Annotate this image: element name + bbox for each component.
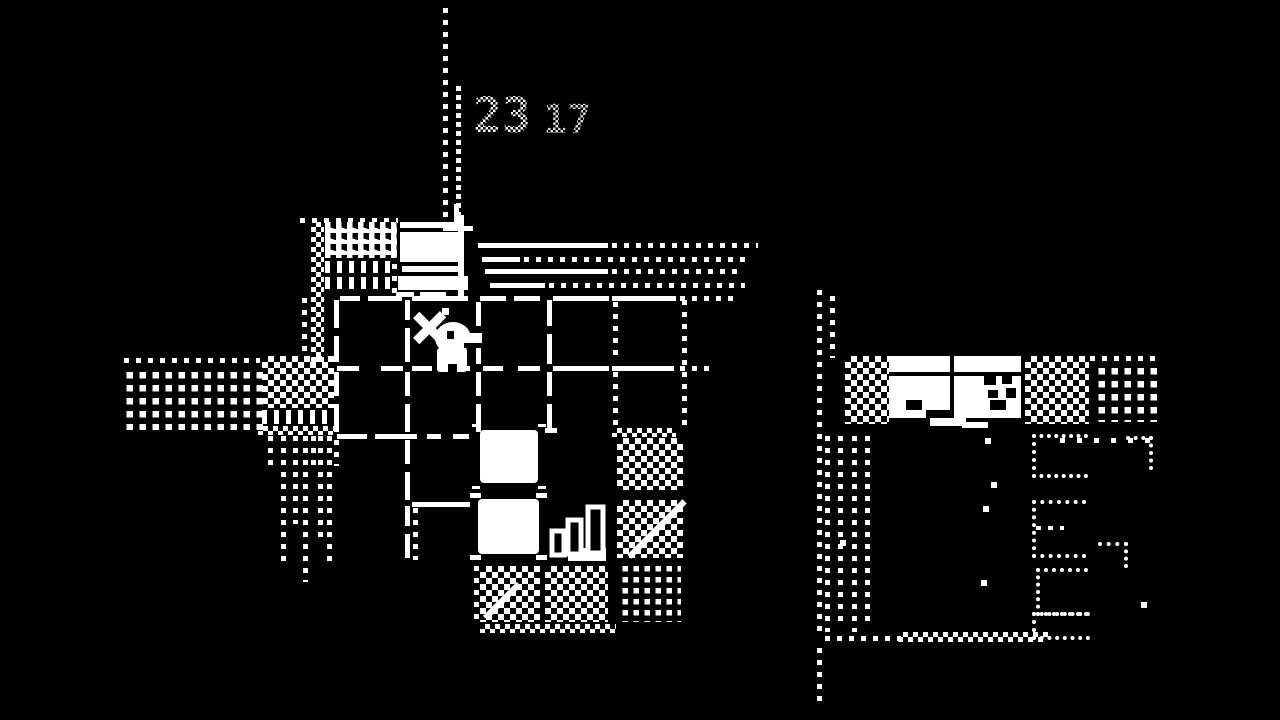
stray-dot <box>840 540 846 546</box>
stray-dot <box>981 580 987 586</box>
waffle-block <box>325 222 397 258</box>
wall <box>405 534 410 558</box>
ray-solid <box>482 257 520 262</box>
window <box>988 390 998 398</box>
stairs-icon <box>544 500 608 562</box>
white-room <box>480 430 538 483</box>
drip-dots <box>838 436 843 626</box>
wall <box>453 434 469 439</box>
top-dotted-line-2 <box>456 86 461 216</box>
building-left-dots <box>392 228 397 300</box>
wall <box>412 502 470 507</box>
ray-solid <box>485 269 608 274</box>
window <box>1002 376 1012 384</box>
window <box>1006 388 1016 398</box>
stub <box>962 422 988 428</box>
building-line <box>402 266 460 272</box>
dotted-room-outline <box>1036 568 1088 616</box>
wall-dotted <box>613 302 618 356</box>
wall <box>405 506 410 526</box>
drip-dots <box>268 436 273 466</box>
drip-dots <box>318 436 323 544</box>
wall <box>334 404 339 432</box>
wall <box>427 434 441 439</box>
panel-dot-grid <box>1092 368 1162 422</box>
building-roof <box>400 222 458 228</box>
wall <box>381 366 403 371</box>
ray-solid <box>478 243 608 248</box>
wall-dotted <box>613 372 618 426</box>
white-room <box>478 499 539 554</box>
dotted-room-outline <box>1126 436 1153 470</box>
wall <box>337 366 359 371</box>
drip-dots <box>334 440 339 466</box>
dither-room-dots <box>617 566 681 622</box>
dither-room <box>545 566 608 622</box>
wall <box>547 404 552 432</box>
wall <box>547 334 552 364</box>
dotted-room-outline <box>1032 434 1088 478</box>
wall <box>340 296 360 301</box>
building-with-windows <box>889 356 1021 430</box>
stray-dot <box>983 506 989 512</box>
panel-dotted-edge-2 <box>830 296 835 358</box>
checker-strip <box>311 222 324 362</box>
wall <box>334 372 339 396</box>
wall <box>612 296 676 301</box>
game-screen[interactable]: 23 17 <box>0 0 1280 720</box>
wall <box>547 300 552 326</box>
drip-dots <box>327 436 332 568</box>
wall <box>553 366 609 371</box>
drip-dots <box>413 508 418 560</box>
building-right-edge <box>458 215 464 298</box>
top-dotted-line <box>443 8 448 222</box>
panel-checker-left <box>845 356 889 424</box>
drip-dots <box>865 436 870 622</box>
hud-counter-right: 17 <box>543 100 591 140</box>
drip-dots <box>293 436 298 524</box>
notch <box>926 410 952 418</box>
ray-solid <box>490 283 545 288</box>
wall <box>483 366 503 371</box>
building-sign <box>390 212 480 302</box>
wall <box>553 296 609 301</box>
band-comb <box>262 410 334 424</box>
band-dot-grid <box>120 372 264 430</box>
stray-dot <box>1141 602 1147 608</box>
drip-dots <box>303 436 308 582</box>
wall <box>514 296 540 301</box>
wall <box>337 434 367 439</box>
wall-dotted <box>682 300 687 430</box>
wall <box>368 296 402 301</box>
panel-dot-row <box>1090 356 1162 361</box>
dotted-room-outline <box>1098 542 1128 568</box>
wall <box>375 434 417 439</box>
wall <box>334 300 339 328</box>
comb-row <box>325 277 397 289</box>
building-divider <box>950 356 954 418</box>
drip-dots <box>311 436 316 470</box>
dither-room <box>617 438 683 490</box>
ray-dots <box>549 283 745 288</box>
hud-counter-left: 23 <box>473 92 531 140</box>
dots-column <box>302 298 307 358</box>
dotted-room-bar <box>1036 526 1064 530</box>
comb-row <box>325 261 397 273</box>
wall <box>405 440 410 464</box>
drip-dots <box>852 436 857 632</box>
wall <box>334 336 339 362</box>
ray-dots <box>612 269 740 274</box>
band-zigzag <box>258 426 336 435</box>
ray-dots <box>612 243 758 248</box>
notch <box>990 400 1006 410</box>
window <box>984 376 996 385</box>
ray-dots <box>524 257 750 262</box>
panel-bottom-zigzag <box>898 632 1048 642</box>
panel-dotted-edge <box>817 648 822 708</box>
drip-dots <box>825 436 830 632</box>
stray-dot <box>985 438 991 444</box>
wall <box>518 366 540 371</box>
wall-dotted <box>474 566 479 624</box>
building-body <box>400 232 462 262</box>
wall <box>612 366 674 371</box>
wall <box>476 404 481 432</box>
band-checker <box>262 356 334 408</box>
band-dot-row <box>124 358 260 363</box>
stray-dot <box>991 482 997 488</box>
dotted-room-outline <box>1032 612 1090 640</box>
zigzag-row <box>612 428 676 437</box>
zigzag-row <box>480 624 616 633</box>
wall <box>405 404 410 432</box>
panel-checker-right <box>1025 356 1089 424</box>
stub <box>930 418 966 426</box>
wall-dotted <box>680 296 736 301</box>
player-sprite <box>406 300 484 378</box>
wall <box>547 372 552 396</box>
notch <box>906 400 922 410</box>
panel-dotted-edge <box>817 290 822 634</box>
drip-dots <box>281 436 286 568</box>
wall <box>405 472 410 500</box>
panel-bottom-dots <box>825 636 901 641</box>
